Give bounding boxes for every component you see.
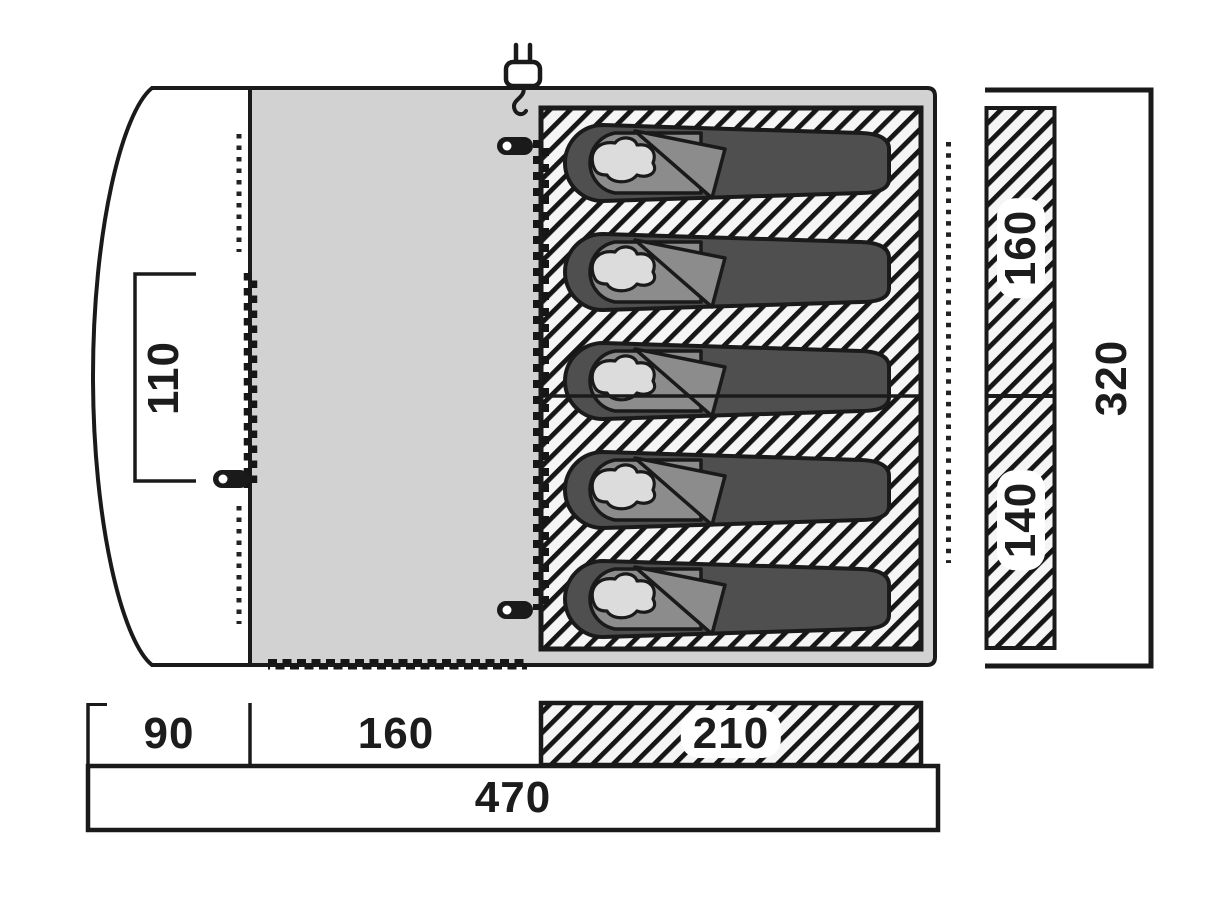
floorplan-graphic (0, 0, 1223, 915)
label-section-living: 160 (358, 712, 434, 756)
label-cabin-width-bottom: 140 (997, 470, 1045, 570)
sleeping-bag (565, 452, 889, 528)
sleeping-bag (565, 234, 889, 310)
label-depth-total: 320 (1090, 340, 1134, 416)
zipper-pull-icon (497, 137, 533, 155)
label-cabin-width-top: 160 (997, 198, 1045, 298)
sleeping-bag (565, 561, 889, 637)
tent-dimension-diagram: 110 160 140 320 90 160 210 470 (0, 0, 1223, 915)
sleeping-bag (565, 343, 889, 419)
zipper-pull-icon (213, 470, 249, 488)
label-porch-door-width: 110 (142, 341, 186, 415)
zipper-pull-icon (497, 601, 533, 619)
label-section-porch: 90 (144, 712, 195, 756)
label-width-total: 470 (475, 776, 551, 820)
label-section-sleeping: 210 (681, 710, 781, 758)
sleeping-bag (565, 125, 889, 201)
